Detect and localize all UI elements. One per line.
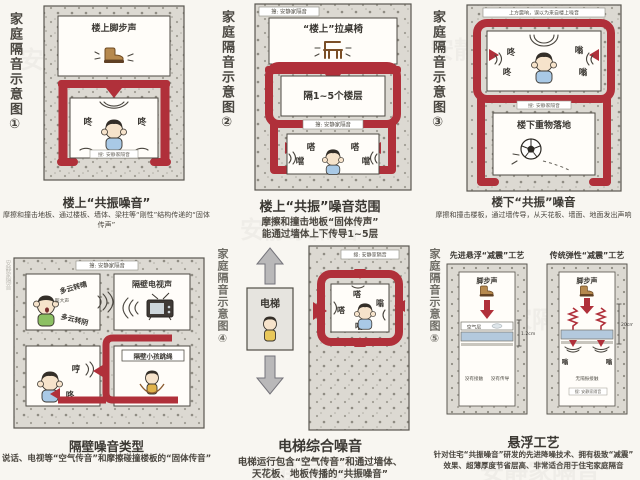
air-layer-label: 空气层 [467,324,482,331]
diagram-traditional-elastic: 传统弹性“减震”工艺 脚步声 20cm 嗡 嗡 [547,250,633,414]
panel4-subcaption: 说话、电视等“空气传音”和摩擦碰撞楼板的“固体传音” [0,452,213,464]
sound-char: 咚 [503,67,512,78]
left-title: 先进悬浮“减震”工艺 [450,250,525,260]
dimension-label: 20cm [621,322,633,328]
panel-neighbour-noise: 安静家隔音 搜: 安静家隔音 [0,240,213,480]
sound-char: 嗡 [376,298,385,308]
panel6-subcaption-1: 针对住宅“共振噪音”研发的先进降噪技术、拥有极致“减震” [427,449,640,460]
note-contact: 无隔振接触 [576,375,599,382]
panel6-subcaption-2: 效果、超薄厚度节省层高、非常适合用于住宅家庭隔音 [427,460,640,471]
chip-text: 搜: 安静家隔音 [575,388,602,394]
kid-in-elevator [264,317,277,342]
sound-char: 嗡 [575,45,584,56]
br-label: 隔壁小孩跳绳 [134,352,174,361]
tl-small-label: 超大声 [55,297,70,304]
panel2-drawing: 搜: 安静家隔音 “楼上”拉桌椅 隔1~5个楼层 搜: 安静家隔音 嗒 [247,2,419,194]
sound-char: 哼 [72,364,81,375]
dimension-label: 1.2cm [521,331,536,337]
soccer-ball-icon [521,139,541,159]
chip-text: 搜: 安静家隔音 [89,262,125,270]
panel-elevator-noise: 家庭隔音示意图④ 电梯 搜: 安静家隔音 [213,240,427,480]
chip-text: 搜: 安静家隔音 [353,252,386,259]
footstep-label: 脚步声 [576,276,598,285]
panel5-side-title: 家庭隔音示意图④ [217,248,228,346]
sound-char: 咚 [507,47,516,58]
sound-char: 嗡 [562,357,569,366]
sound-char: 嗒 [307,142,316,153]
panel6-drawing: 先进悬浮“减震”工艺 脚步声 空气层 1.2cm 没有接触 没有传导 [441,248,633,428]
sound-char: 嗡 [579,67,588,78]
slab [561,341,613,344]
impact-arrow-stem [584,298,590,306]
top-note: 上方震响，误以为来自楼上噪音 [509,10,579,17]
panel3-caption: 楼下“共振”噪音 [427,194,640,210]
panel6-side-title: 家庭隔音示意图⑤ [429,248,440,346]
panel1-subcaption: 摩擦和撞击地板、通过楼板、墙体、梁柱等“刚性”结构传递的“固体传声” [0,210,213,230]
panel3-drawing: 上方震响，误以为来自楼上噪音 咚 嗡 咚 嗡 搜: 安静家隔音 [455,3,633,193]
panel-resonance-range: 家庭隔音示意图② 搜: 安静家隔音 “楼上”拉桌椅 [213,0,427,240]
panel2-subcaption-2: 能通过墙体上下传导1~5层 [213,226,427,240]
panel1-caption: 楼上“共振噪音” [0,194,213,211]
infographic-canvas: 安静家隔音 安静家隔音 安静家隔音 安静家隔音 安静家隔音 安静家隔音 安静家隔… [0,0,640,480]
upper-room-label: 楼上脚步声 [91,22,136,34]
chip-text: 搜: 安静家隔音 [315,121,351,129]
floating-layer [461,332,513,341]
slab [461,343,513,346]
note-no-contact: 没有接触 [465,375,484,382]
panel5-caption: 电梯综合噪音 [213,436,427,456]
panel-downstairs-resonance: 家庭隔音示意图③ 上方震响，误以为来自楼上噪音 咚 嗡 [427,0,640,240]
sound-char: 咚 [83,116,93,128]
panel3-side-title: 家庭隔音示意图③ [431,10,444,132]
sound-char: 噹 [362,156,371,167]
elevator-label: 电梯 [260,297,280,310]
panel1-side-title: 家庭隔音示意图① [8,12,21,134]
chip-text: 搜: 安静家隔音 [98,151,130,158]
air-cloud-icon [492,324,502,328]
panel5-drawing: 电梯 搜: 安静家隔音 嗒 嗒 嗡 嗒 [229,244,417,434]
impact-arrow-stem [484,300,490,310]
elevator-down-arrow-icon [257,356,283,394]
sound-char: 噹 [296,156,305,167]
right-title: 传统弹性“减震”工艺 [549,250,625,260]
sound-char: 嗒 [351,142,360,153]
sound-char: 咚 [137,116,147,128]
panel-suspension-technique: 家庭隔音示意图⑤ 先进悬浮“减震”工艺 脚步声 [427,240,640,480]
solid-sound-slab [58,80,170,88]
elastic-layer [561,330,613,339]
room1-label: “楼上”拉桌椅 [303,23,363,35]
sound-char: 嗒 [337,305,346,315]
panel1-drawing: 楼上脚步声 咚 咚 [34,4,194,192]
panel5-subcaption-2: 天花板、地板传播的“共振噪音” [213,466,427,480]
note-no-transfer: 没有传导 [491,375,510,382]
sound-char: 嗡 [606,357,613,366]
panel4-side-watermark: 安静家隔音 [3,260,12,290]
panel2-side-title: 家庭隔音示意图② [220,10,233,132]
chip-text: 搜: 安静家隔音 [528,102,560,109]
panel4-drawing: 搜: 安静家隔音 多云转晴 多云转阴 超大声 隔壁电视声 [12,252,208,434]
chip-text: 搜: 安静家隔音 [271,8,307,16]
room2-label: 隔1~5个楼层 [303,90,363,102]
diagram-advanced-floating: 先进悬浮“减震”工艺 脚步声 空气层 1.2cm 没有接触 没有传导 [447,250,536,414]
panel3-subcaption: 摩擦和撞击楼板，通过墙传导，从天花板、墙面、地面发出声响 [427,210,640,220]
sound-char: 嗒 [353,289,362,299]
tr-label: 隔壁电视声 [132,279,172,289]
panel-upstairs-footsteps: 家庭隔音示意图① 楼上脚步声 [0,0,213,240]
room2-label: 楼下重物落地 [517,119,571,131]
footstep-label: 脚步声 [476,276,498,285]
panel2-caption: 楼上“共振”噪音范围 [213,196,427,215]
elevator-up-arrow-icon [257,248,283,284]
